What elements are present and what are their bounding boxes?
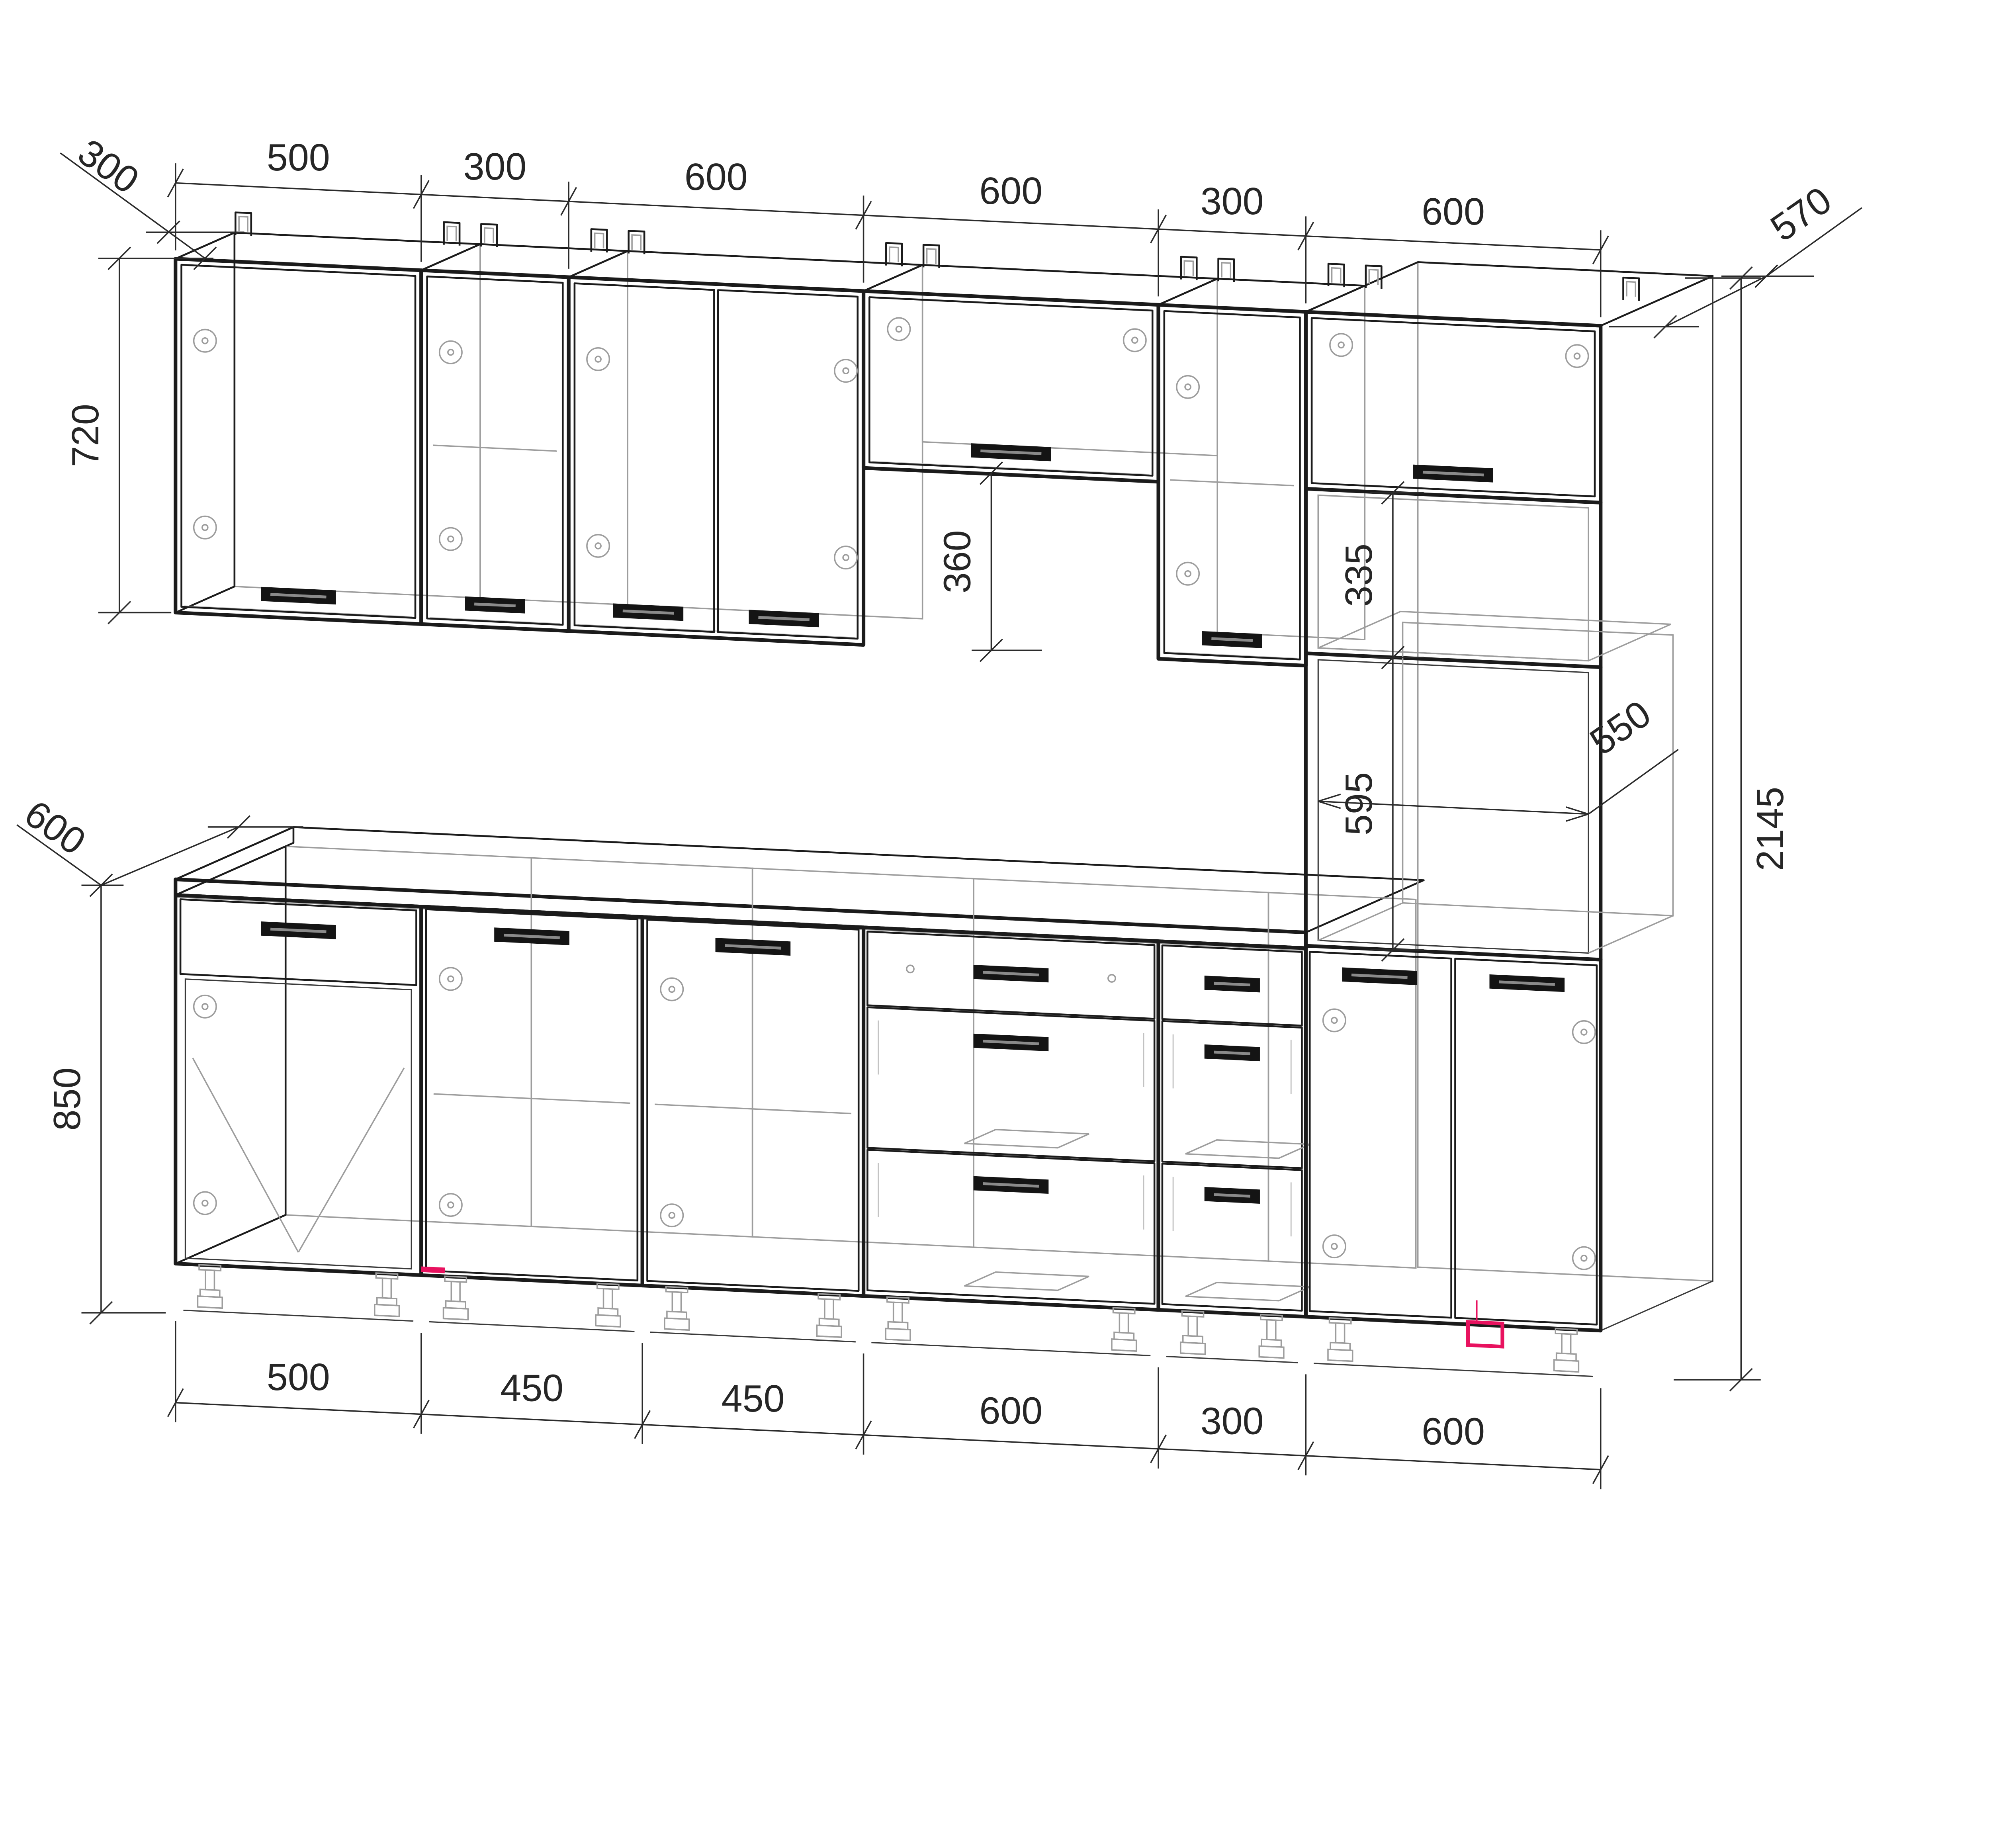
base-cabinet-3	[642, 868, 974, 1342]
dim-720: 720	[65, 247, 171, 624]
svg-text:600: 600	[1422, 191, 1485, 233]
dim-570-depth: 570	[1609, 179, 1862, 338]
svg-text:550: 550	[1582, 692, 1659, 763]
base-cabinet-4	[864, 879, 1269, 1356]
svg-text:300: 300	[464, 146, 527, 188]
svg-text:300: 300	[70, 131, 147, 202]
dim-300-depth: 300	[61, 131, 244, 270]
svg-text:500: 500	[267, 1356, 330, 1398]
dim-600-depth: 600	[17, 792, 303, 885]
svg-text:450: 450	[722, 1378, 785, 1420]
svg-text:600: 600	[1422, 1411, 1485, 1453]
dim-2145: 2145	[1674, 267, 1792, 1391]
svg-text:600: 600	[685, 156, 748, 198]
technical-drawing: 5003006006003006005004504506003006007208…	[0, 0, 1991, 1629]
svg-text:850: 850	[46, 1068, 88, 1131]
svg-text:360: 360	[937, 530, 979, 593]
svg-text:720: 720	[65, 404, 107, 467]
base-cabinet-2	[421, 858, 753, 1331]
dimension-annotations: 5003006006003006005004504506003006007208…	[17, 131, 1862, 1489]
svg-text:300: 300	[1201, 180, 1264, 223]
base-cabinet-1	[176, 847, 532, 1321]
svg-text:300: 300	[1201, 1400, 1264, 1443]
dim-335: 335595	[1338, 481, 1424, 961]
accent-marks	[421, 1269, 1502, 1347]
dim-top-chain: 500300600600300600	[168, 137, 1608, 317]
svg-text:600: 600	[979, 1390, 1042, 1432]
svg-text:600: 600	[979, 170, 1042, 212]
wall-cabinet-1	[176, 212, 480, 624]
dim-bottom-chain: 500450450600300600	[168, 1321, 1608, 1489]
svg-text:450: 450	[500, 1367, 563, 1410]
base-cabinet-5	[1158, 893, 1416, 1363]
plinth-connector-mark	[421, 1269, 445, 1271]
dim-360: 360	[937, 462, 1042, 661]
svg-text:600: 600	[17, 792, 93, 863]
page: 5003006006003006005004504506003006007208…	[0, 0, 1991, 1629]
dim-850: 850	[46, 874, 166, 1324]
svg-text:335: 335	[1338, 544, 1380, 607]
countertop	[176, 827, 1424, 950]
highlighted-foot-bracket	[1468, 1300, 1502, 1347]
cabinet-run	[176, 212, 1713, 1376]
svg-text:570: 570	[1763, 179, 1839, 250]
svg-text:2145: 2145	[1749, 787, 1792, 871]
svg-text:500: 500	[267, 137, 330, 179]
